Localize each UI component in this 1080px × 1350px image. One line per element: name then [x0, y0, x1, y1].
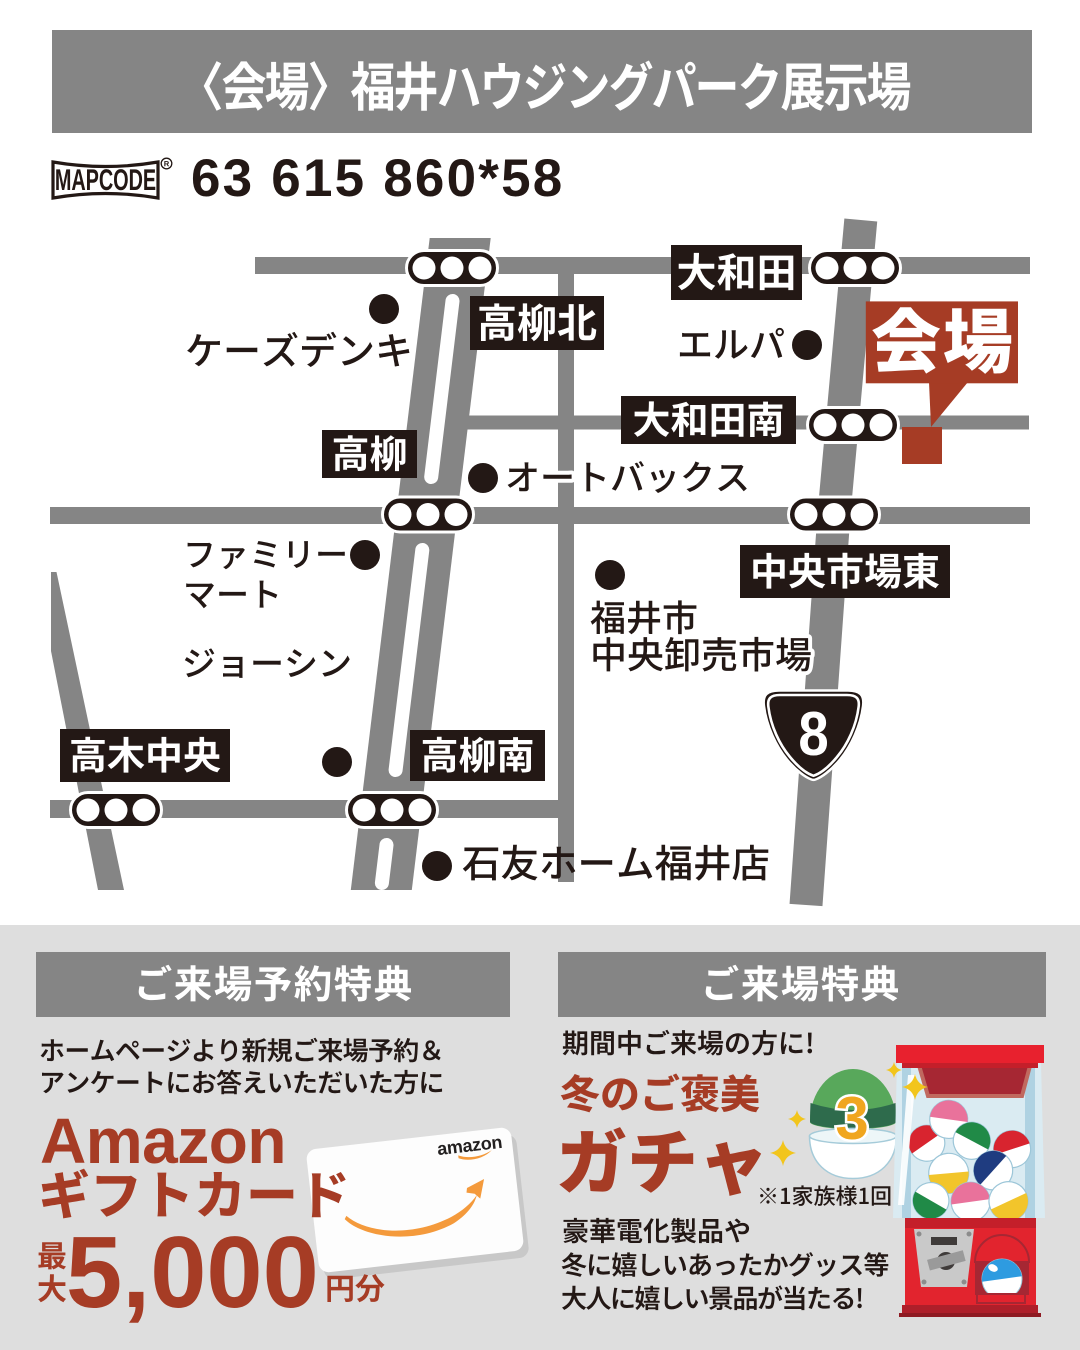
- svg-text:3: 3: [835, 1085, 868, 1152]
- svg-text:Amazon: Amazon: [40, 1105, 286, 1177]
- svg-text:8: 8: [798, 700, 828, 769]
- svg-text:5,000: 5,000: [66, 1217, 319, 1329]
- svg-text:63 615 860*58: 63 615 860*58: [191, 149, 564, 208]
